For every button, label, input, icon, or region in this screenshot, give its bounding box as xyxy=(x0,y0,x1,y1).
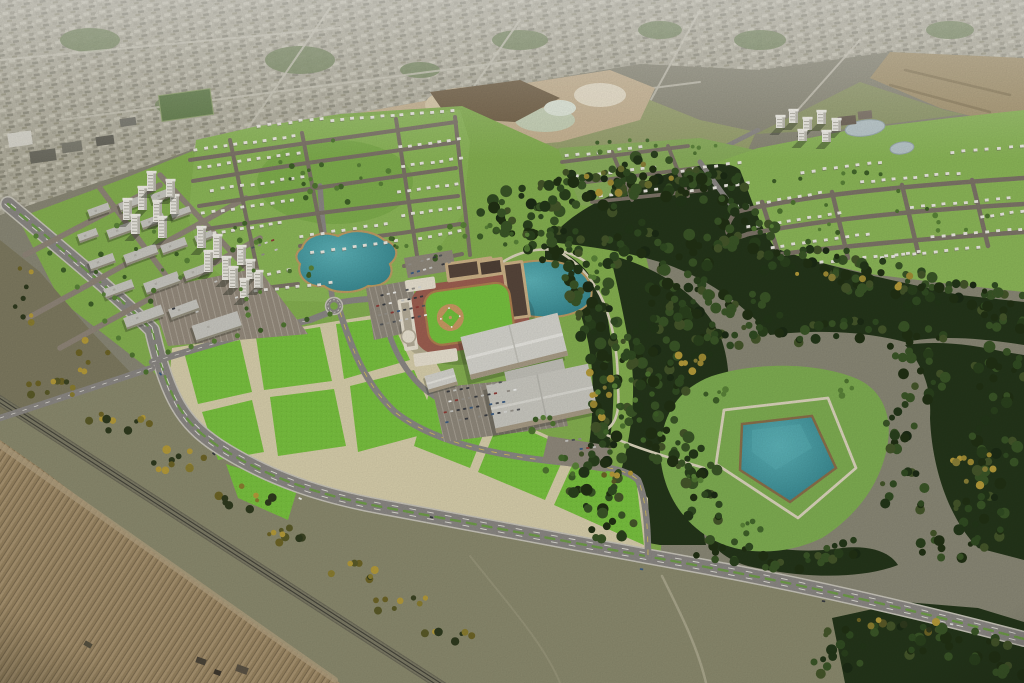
aerial-rendering: Aerial rendering of a mixed-use developm… xyxy=(0,0,1024,683)
vignette xyxy=(0,0,1024,683)
aerial-rendering-stage: Aerial rendering of a mixed-use developm… xyxy=(0,0,1024,683)
